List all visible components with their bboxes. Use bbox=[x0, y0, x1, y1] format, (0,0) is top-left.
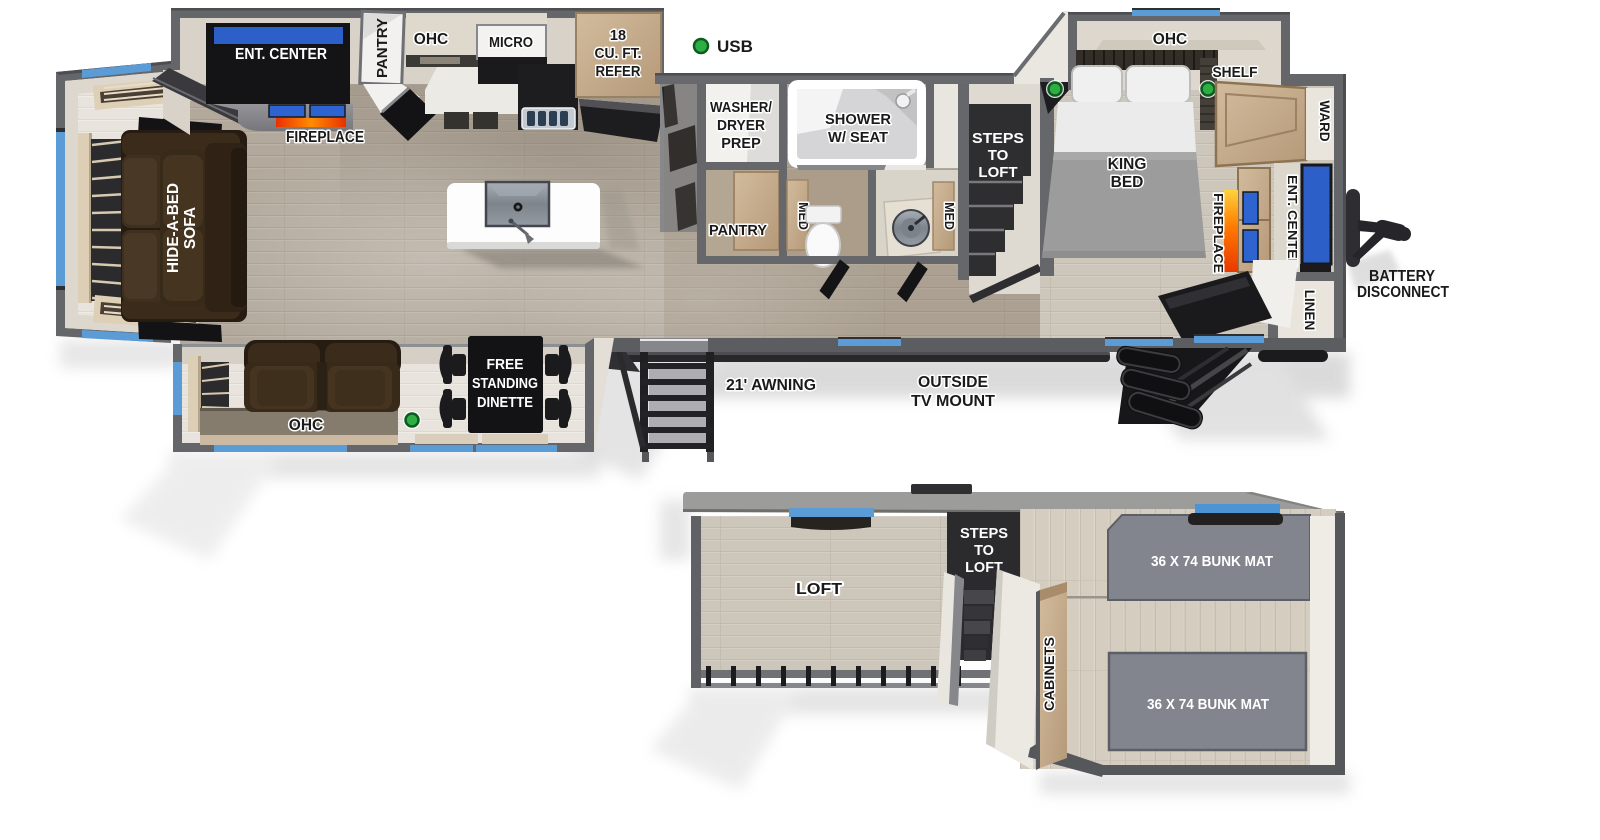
svg-text:OHC: OHC bbox=[289, 417, 323, 434]
svg-text:OHC: OHC bbox=[414, 31, 448, 48]
svg-text:BATTERY: BATTERY bbox=[1369, 268, 1436, 285]
svg-text:STEPS: STEPS bbox=[972, 130, 1024, 147]
svg-text:FIREPLACE: FIREPLACE bbox=[1211, 193, 1225, 273]
svg-text:36 X 74 BUNK MAT: 36 X 74 BUNK MAT bbox=[1151, 553, 1273, 570]
svg-text:36 X 74 BUNK MAT: 36 X 74 BUNK MAT bbox=[1147, 696, 1269, 713]
svg-text:LINEN: LINEN bbox=[1302, 290, 1317, 331]
svg-text:STANDING: STANDING bbox=[472, 376, 538, 392]
svg-text:DINETTE: DINETTE bbox=[477, 395, 533, 411]
svg-text:DISCONNECT: DISCONNECT bbox=[1357, 284, 1449, 301]
svg-text:STEPS: STEPS bbox=[960, 526, 1008, 542]
svg-text:18: 18 bbox=[610, 28, 626, 44]
svg-text:REFER: REFER bbox=[596, 64, 641, 80]
svg-text:USB: USB bbox=[717, 37, 753, 56]
svg-text:ENT. CENTER: ENT. CENTER bbox=[235, 46, 327, 63]
svg-text:MED: MED bbox=[942, 202, 956, 230]
svg-text:PANTRY: PANTRY bbox=[709, 223, 767, 239]
svg-text:MICRO: MICRO bbox=[489, 34, 533, 51]
svg-text:21' AWNING: 21' AWNING bbox=[726, 377, 816, 394]
svg-text:SHELF: SHELF bbox=[1213, 64, 1258, 81]
svg-text:CABINETS: CABINETS bbox=[1041, 637, 1057, 711]
svg-text:CU. FT.: CU. FT. bbox=[595, 46, 642, 62]
svg-text:TO: TO bbox=[988, 147, 1009, 164]
svg-text:W/ SEAT: W/ SEAT bbox=[828, 130, 888, 146]
svg-text:PREP: PREP bbox=[721, 136, 761, 152]
svg-text:KING: KING bbox=[1108, 156, 1147, 173]
svg-text:TO: TO bbox=[974, 543, 994, 559]
svg-text:FREE: FREE bbox=[487, 357, 524, 373]
svg-text:OUTSIDE: OUTSIDE bbox=[918, 374, 988, 391]
svg-text:WASHER/: WASHER/ bbox=[710, 100, 772, 116]
svg-text:LOFT: LOFT bbox=[978, 164, 1017, 181]
svg-text:LOFT: LOFT bbox=[796, 581, 842, 598]
svg-text:BED: BED bbox=[1111, 174, 1144, 191]
svg-text:FIREPLACE: FIREPLACE bbox=[286, 129, 364, 146]
svg-text:HIDE-A-BED: HIDE-A-BED bbox=[165, 183, 182, 273]
svg-text:SOFA: SOFA bbox=[182, 207, 199, 249]
svg-text:DRYER: DRYER bbox=[717, 118, 765, 134]
svg-text:SHOWER: SHOWER bbox=[825, 112, 892, 128]
svg-text:WARD: WARD bbox=[1317, 100, 1332, 141]
svg-text:PANTRY: PANTRY bbox=[375, 18, 391, 78]
svg-text:ENT. CENTER: ENT. CENTER bbox=[1285, 175, 1299, 269]
svg-text:OHC: OHC bbox=[1153, 31, 1187, 48]
svg-text:TV MOUNT: TV MOUNT bbox=[911, 393, 996, 410]
